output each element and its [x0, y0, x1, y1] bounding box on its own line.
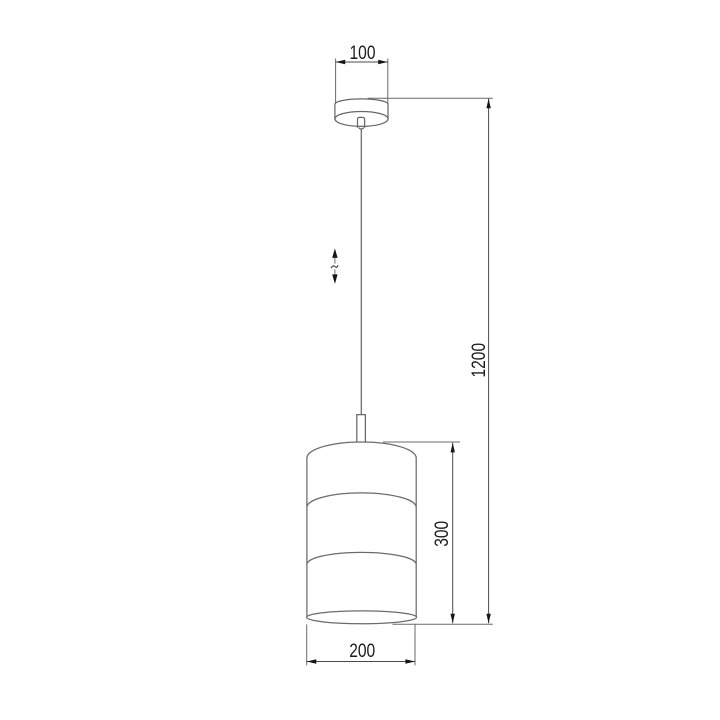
svg-text:100: 100	[350, 42, 376, 64]
svg-text:300: 300	[431, 521, 453, 547]
svg-text:200: 200	[349, 640, 375, 662]
svg-text:1200: 1200	[468, 343, 490, 378]
